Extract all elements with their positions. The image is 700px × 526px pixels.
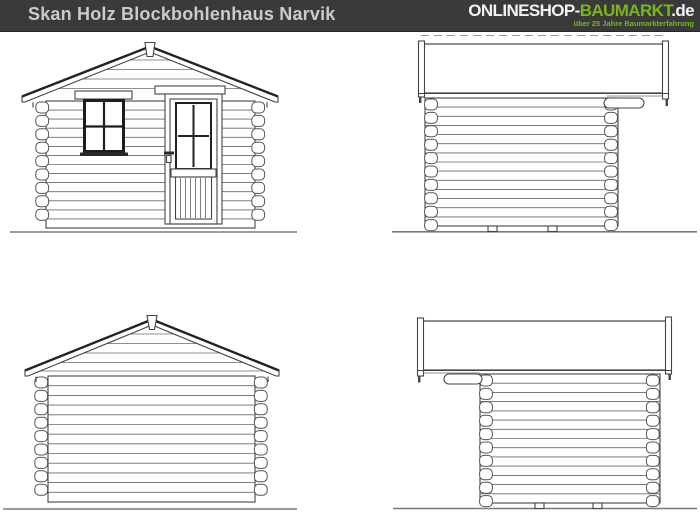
brand-logo-text: ONLINESHOP-BAUMARKT.de: [468, 2, 694, 19]
door-lock-plate: [167, 156, 172, 163]
gable-fascia-left: [418, 318, 424, 376]
wall-faces: [46, 98, 660, 503]
door-lintel: [155, 86, 225, 94]
cabin-elevation-drawings: [0, 32, 700, 526]
front-window: [75, 91, 132, 156]
gable-fascia-left: [419, 41, 425, 97]
brand-logo: ONLINESHOP-BAUMARKT.de über 25 Jahre Bau…: [468, 2, 694, 28]
gable-fascia-right: [663, 41, 669, 99]
front-door: [155, 86, 225, 224]
gable-roof: [22, 43, 278, 108]
gable-fascia-right: [666, 317, 672, 374]
roof-slab: [423, 321, 666, 370]
logo-part-baumarkt: BAUMARKT: [580, 1, 672, 20]
page-title: Skan Holz Blockbohlenhaus Narvik: [28, 4, 335, 25]
window-sill: [80, 153, 128, 157]
door-handle: [164, 152, 174, 155]
door-mid-rail: [171, 169, 216, 177]
roof-purlin: [604, 98, 644, 108]
roof-purlin: [444, 374, 482, 384]
foundation-foot: [593, 503, 602, 509]
foundation-foot: [535, 503, 544, 509]
header-bar: Skan Holz Blockbohlenhaus Narvik ONLINES…: [0, 0, 700, 32]
brand-tagline: über 25 Jahre Baumarkterfahrung: [468, 20, 694, 28]
logo-part-shop: ONLINESHOP-: [468, 1, 579, 20]
foundation-foot: [488, 226, 497, 232]
foundation-foot: [548, 226, 557, 232]
roof-finial: [147, 316, 157, 330]
roof-finial: [145, 43, 155, 57]
gable-roof: [25, 316, 279, 383]
window-lintel: [75, 91, 132, 99]
logo-part-de: .de: [671, 1, 694, 20]
roof-slab: [422, 44, 666, 93]
rear-wall: [48, 376, 255, 502]
